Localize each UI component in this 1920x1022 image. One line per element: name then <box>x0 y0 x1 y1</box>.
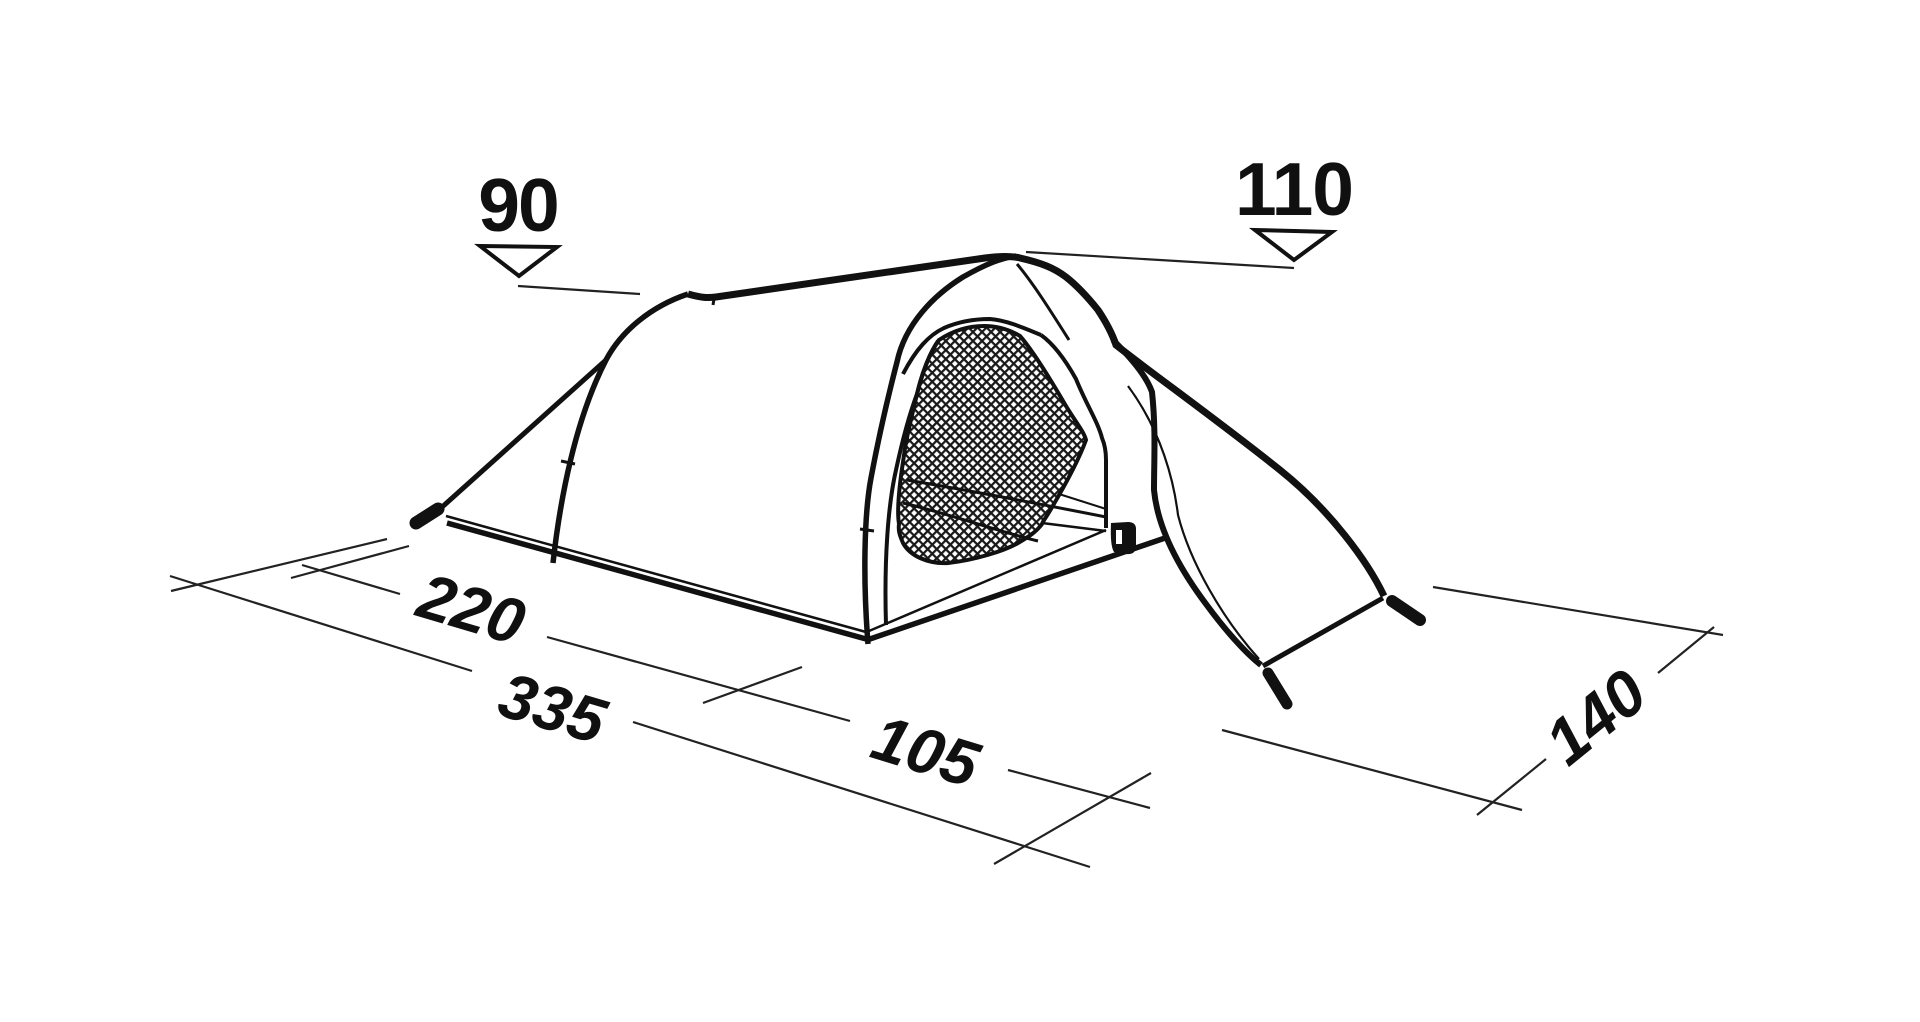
svg-text:335: 335 <box>491 658 615 758</box>
svg-text:110: 110 <box>1235 147 1353 231</box>
svg-text:105: 105 <box>864 701 989 801</box>
svg-text:220: 220 <box>409 559 533 659</box>
svg-text:140: 140 <box>1532 655 1660 778</box>
svg-text:90: 90 <box>478 163 557 247</box>
